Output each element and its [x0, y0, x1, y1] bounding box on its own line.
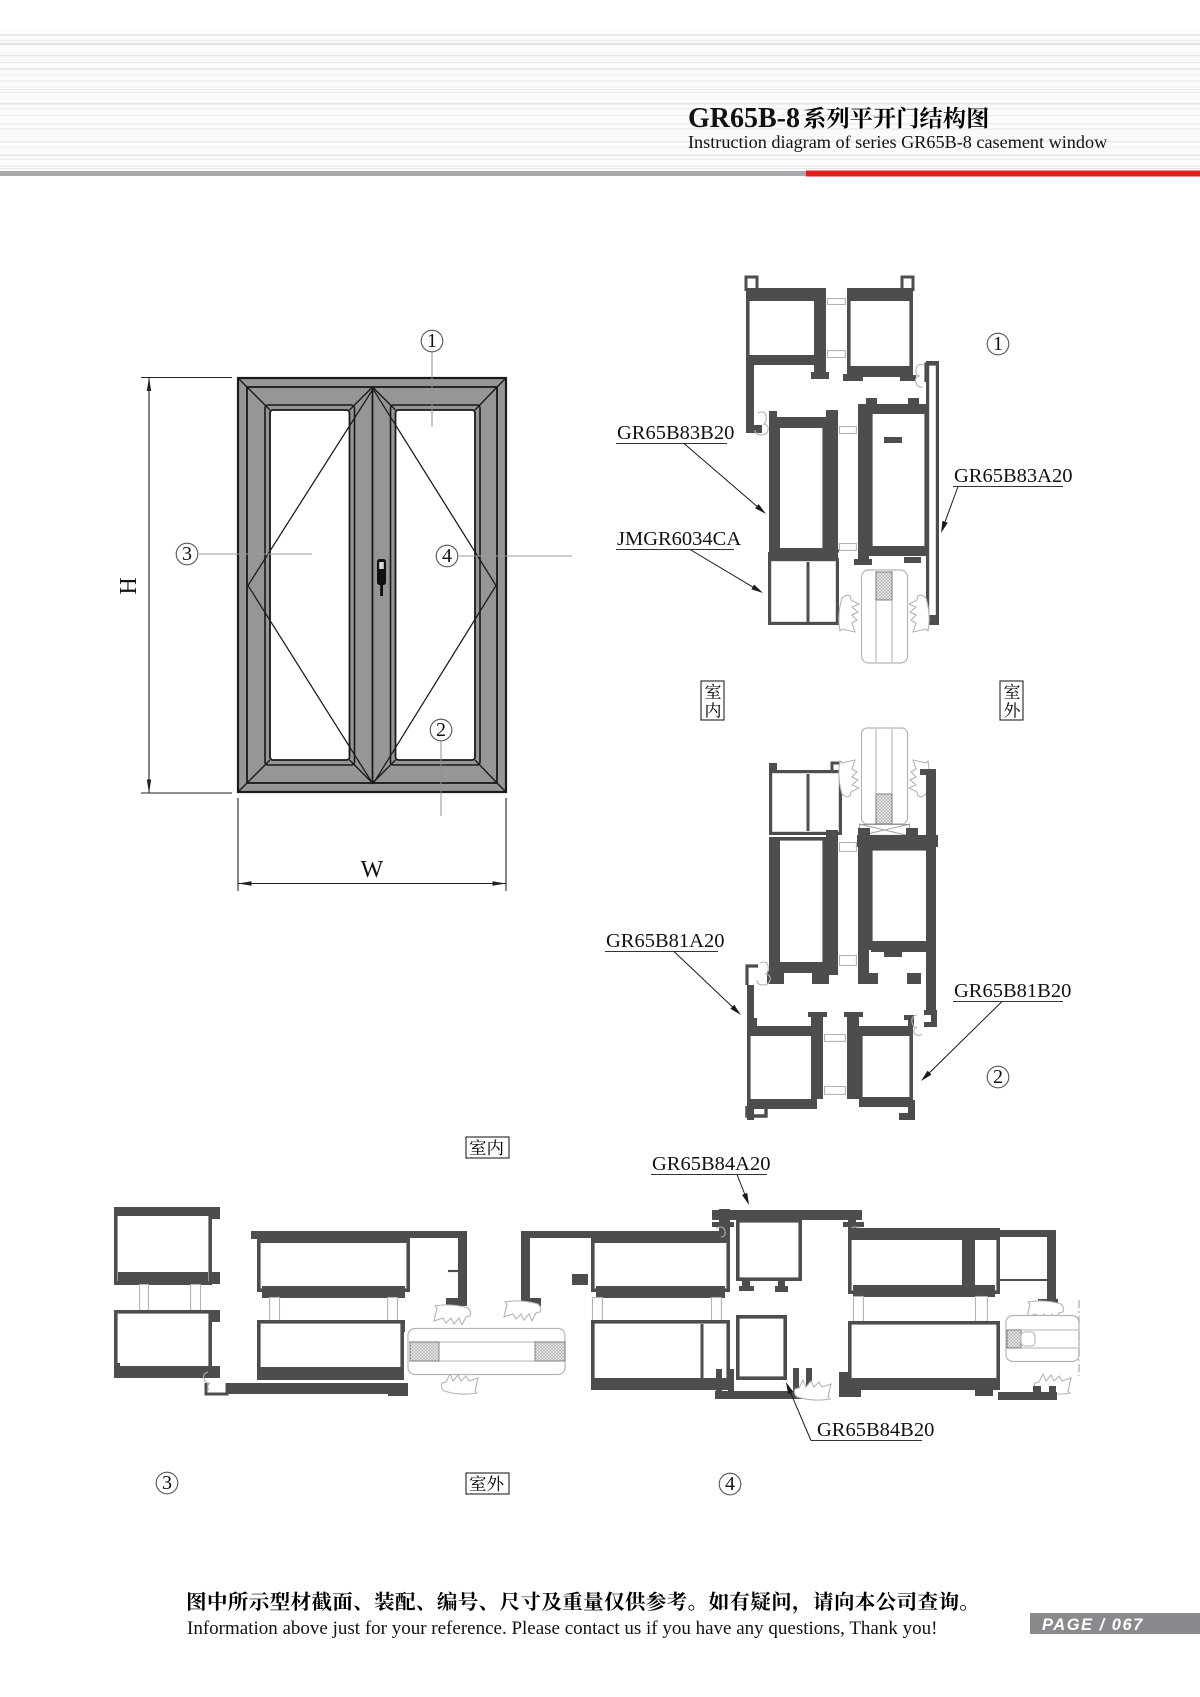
- svg-text:4: 4: [442, 545, 452, 567]
- svg-text:JMGR6034CA: JMGR6034CA: [617, 528, 741, 550]
- svg-text:3: 3: [162, 1472, 172, 1494]
- svg-text:W: W: [361, 857, 384, 883]
- svg-text:1: 1: [427, 330, 437, 352]
- svg-text:GR65B83B20: GR65B83B20: [617, 422, 734, 444]
- svg-text:GR65B-8: GR65B-8: [688, 103, 800, 134]
- svg-text:2: 2: [993, 1066, 1003, 1088]
- svg-text:Information above just for you: Information above just for your referenc…: [187, 1618, 937, 1639]
- svg-text:GR65B83A20: GR65B83A20: [954, 465, 1072, 487]
- svg-text:4: 4: [725, 1473, 735, 1495]
- svg-text:GR65B81B20: GR65B81B20: [954, 980, 1071, 1002]
- svg-text:Instruction diagram of series: Instruction diagram of series GR65B-8 ca…: [688, 132, 1108, 152]
- svg-text:1: 1: [993, 333, 1003, 355]
- svg-text:GR65B81A20: GR65B81A20: [606, 930, 724, 952]
- svg-text:2: 2: [436, 719, 446, 741]
- svg-text:H: H: [116, 577, 142, 594]
- svg-text:PAGE / 067: PAGE / 067: [1042, 1616, 1144, 1634]
- svg-text:GR65B84A20: GR65B84A20: [652, 1153, 770, 1175]
- svg-text:3: 3: [182, 543, 192, 565]
- svg-text:GR65B84B20: GR65B84B20: [817, 1419, 934, 1441]
